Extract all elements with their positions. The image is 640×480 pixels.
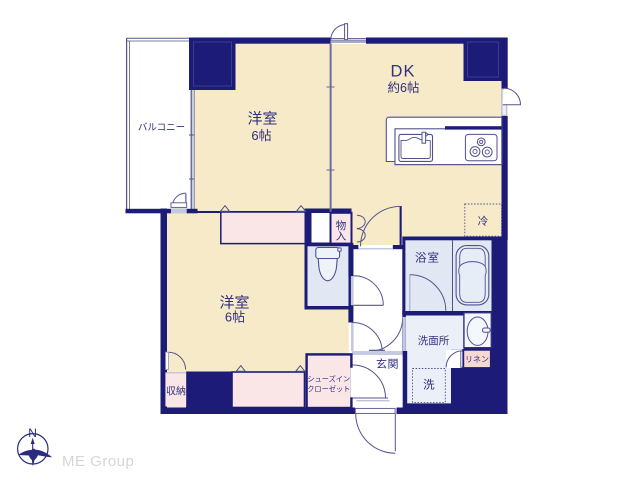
svg-text:洗面所: 洗面所 xyxy=(418,335,450,347)
svg-text:6帖: 6帖 xyxy=(251,128,271,143)
svg-text:入: 入 xyxy=(336,231,347,243)
svg-text:6帖: 6帖 xyxy=(225,310,245,325)
svg-text:N: N xyxy=(28,426,37,440)
svg-text:浴室: 浴室 xyxy=(415,251,440,265)
svg-text:シューズイン: シューズイン xyxy=(307,374,350,383)
svg-text:ME Group: ME Group xyxy=(62,453,134,470)
svg-text:リネン: リネン xyxy=(465,355,489,364)
svg-text:収納: 収納 xyxy=(166,385,186,398)
svg-text:冷: 冷 xyxy=(478,215,489,228)
svg-text:バルコニー: バルコニー xyxy=(138,123,185,134)
svg-text:約6帖: 約6帖 xyxy=(388,80,420,95)
svg-text:DK: DK xyxy=(391,63,416,81)
svg-text:洗: 洗 xyxy=(423,379,435,392)
svg-text:クローゼット: クローゼット xyxy=(307,384,350,393)
svg-text:洋室: 洋室 xyxy=(247,111,277,128)
svg-text:玄関: 玄関 xyxy=(376,357,399,371)
